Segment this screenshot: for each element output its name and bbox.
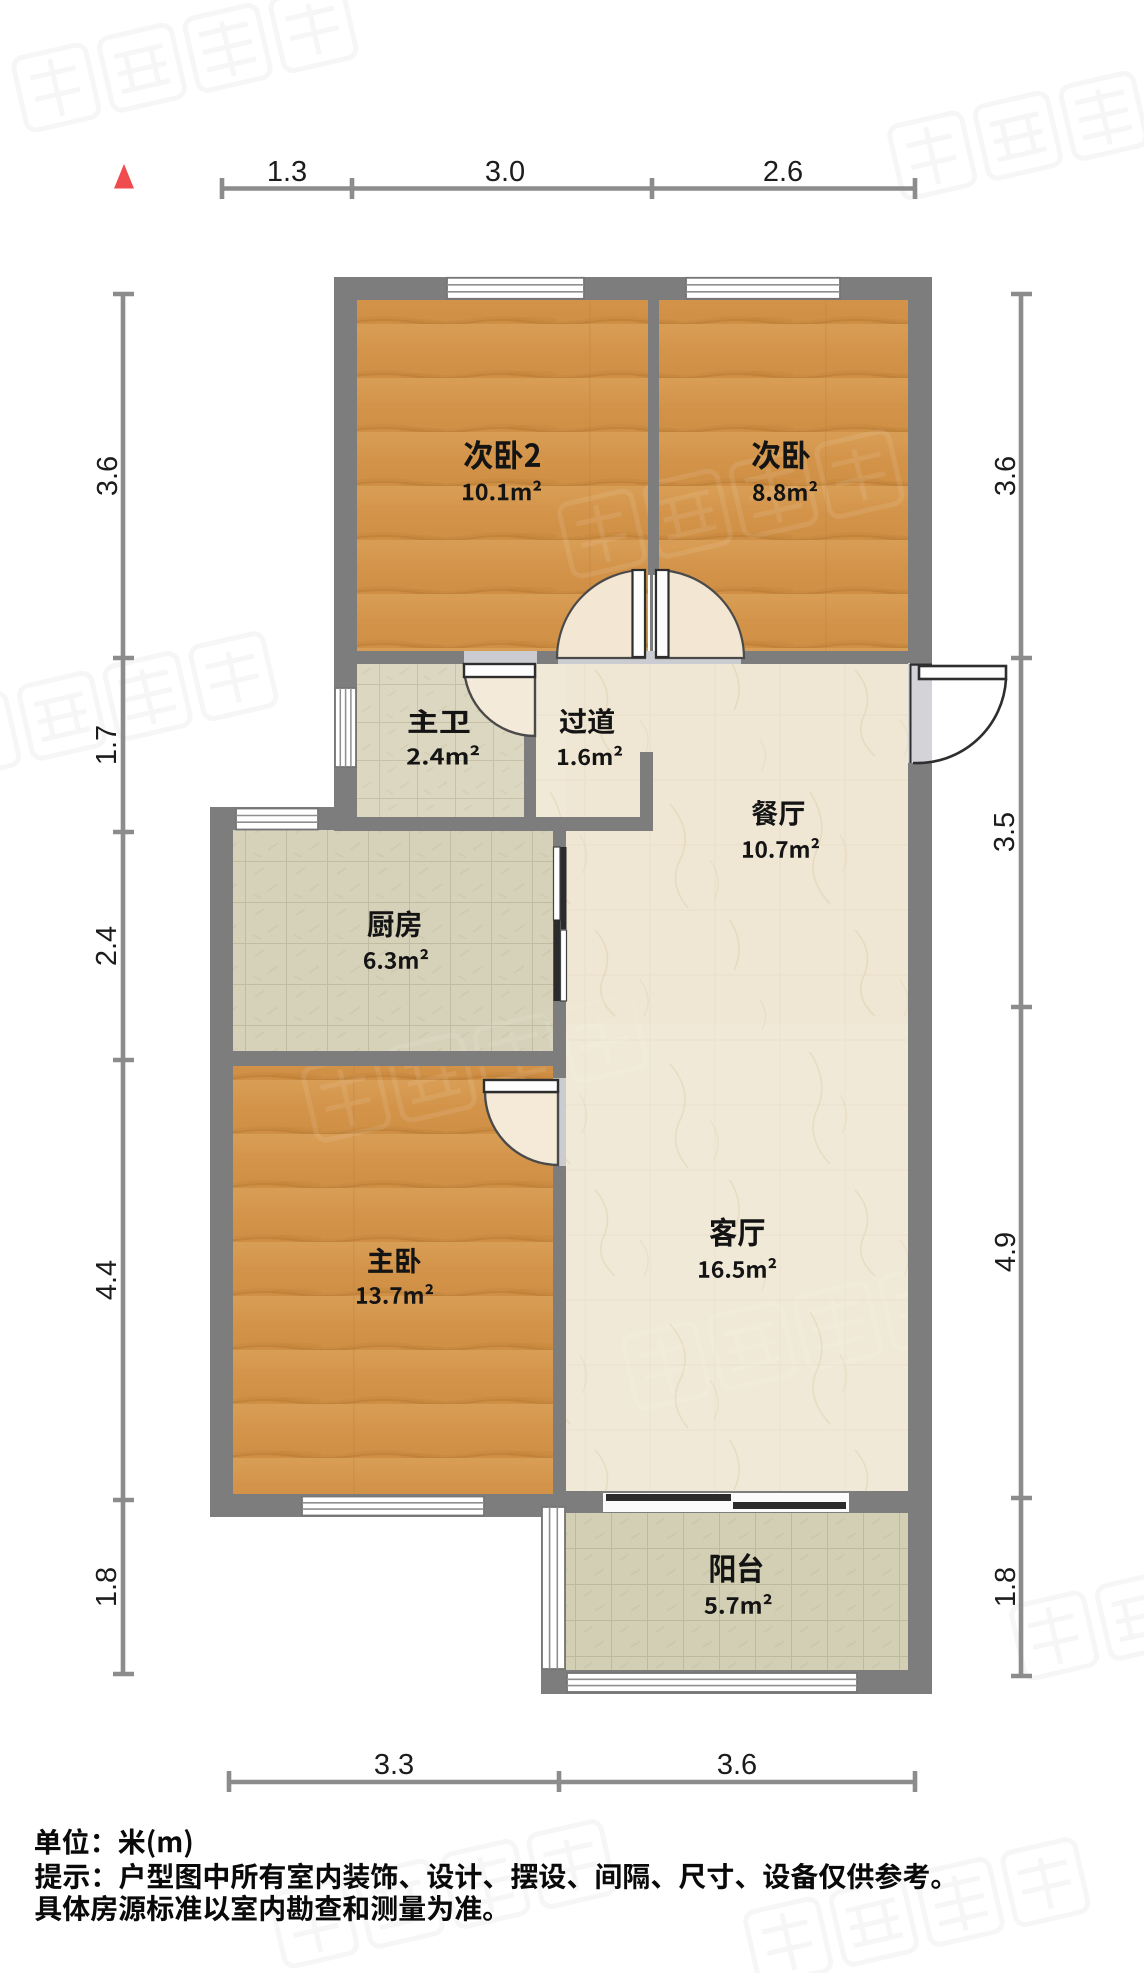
svg-text:3.3: 3.3 (374, 1749, 414, 1781)
svg-text:1.8: 1.8 (91, 1567, 123, 1607)
svg-text:4.9: 4.9 (990, 1232, 1022, 1272)
svg-text:1.8: 1.8 (990, 1567, 1022, 1607)
svg-text:3.6: 3.6 (717, 1749, 757, 1781)
svg-text:2.6: 2.6 (763, 156, 803, 188)
svg-text:1.3: 1.3 (267, 156, 307, 188)
svg-text:1.7: 1.7 (91, 725, 123, 765)
svg-text:4.4: 4.4 (91, 1260, 123, 1300)
svg-text:3.6: 3.6 (990, 456, 1022, 496)
svg-text:3.6: 3.6 (92, 456, 124, 496)
svg-text:3.5: 3.5 (989, 812, 1021, 852)
svg-text:3.0: 3.0 (485, 156, 525, 188)
svg-text:2.4: 2.4 (91, 926, 123, 966)
